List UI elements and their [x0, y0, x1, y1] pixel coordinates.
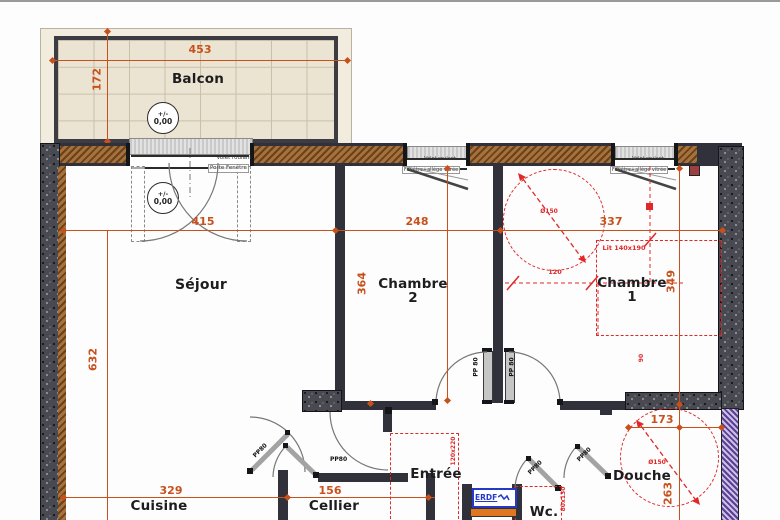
- dim-line-172: [107, 31, 108, 142]
- dim-line-349-263: [679, 165, 680, 520]
- room-label-entree: Entrée: [403, 468, 469, 482]
- wall-douche-end: [600, 401, 612, 415]
- door-label-cellier: PP80: [330, 457, 347, 463]
- dim-cuisine-width: 329: [155, 485, 187, 496]
- dim-chambre1-width: 337: [593, 216, 629, 227]
- dim-marker: [444, 397, 451, 404]
- dim-chambre2-width: 248: [399, 216, 435, 227]
- wc-size-label: 80x130: [561, 482, 567, 516]
- dim-line-bottom: [60, 497, 435, 498]
- level-value: 0,00: [154, 118, 173, 126]
- wall-right-insulation: [721, 408, 739, 520]
- label-volet-roulant-ch2: Volet roulant: [420, 156, 460, 162]
- wall-cap: [611, 143, 615, 166]
- room-label-balcon: Balcon: [168, 73, 228, 87]
- red-square-marker: [646, 203, 653, 210]
- top-rule: [0, 0, 780, 2]
- dim-line-main: [60, 230, 722, 231]
- dim-sejour-depth: 632: [88, 343, 99, 377]
- erdf-wave-icon: [498, 494, 510, 502]
- door-label-chambre2: PP 80: [474, 357, 480, 376]
- clearance-circle-chambre1: [503, 169, 605, 271]
- dim-balcony-width: 453: [184, 44, 216, 55]
- wall-cap: [403, 143, 407, 166]
- label-fenetre-ch1: Fenêtre+allège vitrée: [610, 166, 668, 174]
- room-label-douche: Douche: [610, 470, 674, 484]
- room-label-cuisine: Cuisine: [128, 500, 190, 514]
- diameter-label-chambre1: Ø150: [536, 209, 562, 215]
- door-label-chambre1: PP 80: [510, 357, 516, 376]
- dim-chambre2-depth: 364: [357, 267, 368, 301]
- door-label-wc: PP80: [527, 460, 543, 476]
- dim-balcony-depth: 172: [92, 63, 103, 97]
- label-fenetre-ch2: Fenêtre+allège vitrée: [402, 166, 460, 174]
- wall-sejour-chambre2: [335, 163, 345, 403]
- room-label-sejour: Séjour: [168, 278, 234, 292]
- room-label-chambre2: Chambre 2: [375, 278, 451, 305]
- door-cap: [482, 400, 492, 404]
- dim-door-clearance: 90: [639, 350, 645, 366]
- room-label-chambre1: Chambre 1: [596, 277, 668, 304]
- door-cap: [504, 400, 514, 404]
- door-leaf-chambre2: [483, 351, 493, 403]
- label-volet-roulant-sejour: Volet roulant: [210, 155, 258, 162]
- room-label-wc: Wc.: [528, 506, 560, 520]
- dim-cellier-width: 156: [314, 485, 346, 496]
- door-label-cuisine: PP80: [252, 443, 268, 459]
- door-cap: [504, 348, 514, 352]
- dim-douche-width: 173: [645, 414, 679, 425]
- door-label-douche: PP80: [576, 447, 592, 463]
- erdf-box: ERDF: [472, 488, 517, 508]
- wall-bedrooms-bottom-right: [560, 401, 625, 410]
- wall-block-sejour-bottom: [302, 390, 342, 412]
- room-label-cellier: Cellier: [303, 500, 365, 514]
- door-cap: [482, 348, 492, 352]
- dim-bed-clearance: 120: [544, 269, 566, 276]
- wall-cap: [466, 143, 470, 166]
- wall-chambre2-chambre1: [493, 163, 503, 403]
- balcony-level-badge: +/- 0,00: [147, 102, 179, 134]
- floor-plan: Balcon +/- 0,00 453 172 Volet roulant Po…: [0, 0, 780, 520]
- wall-cap: [674, 143, 678, 166]
- erdf-meter-bar: [470, 508, 517, 517]
- wall-cap: [126, 143, 130, 166]
- bed-label: Lit 140x190: [598, 245, 650, 252]
- wall-hall-stub: [383, 408, 392, 432]
- level-value: 0,00: [154, 198, 173, 206]
- porte-fenetre-shutter-box: [129, 138, 253, 155]
- erdf-label: ERDF: [474, 494, 497, 502]
- outlet-symbol: [689, 165, 700, 176]
- dim-line-632: [107, 231, 108, 520]
- label-volet-roulant-ch1: Volet roulant: [628, 156, 668, 162]
- dim-line-453: [52, 60, 347, 61]
- diameter-label-douche: Ø150: [644, 460, 670, 466]
- label-porte-fenetre: Porte Fenêtre: [208, 164, 249, 173]
- closet-size-label: 120x220: [451, 433, 457, 469]
- sejour-level-badge: +/- 0,00: [147, 182, 179, 214]
- dim-marker: [676, 165, 683, 172]
- wall-left-exterior: [40, 143, 60, 520]
- dim-sejour-width: 415: [185, 216, 221, 227]
- wall-left-hatch: [58, 166, 66, 520]
